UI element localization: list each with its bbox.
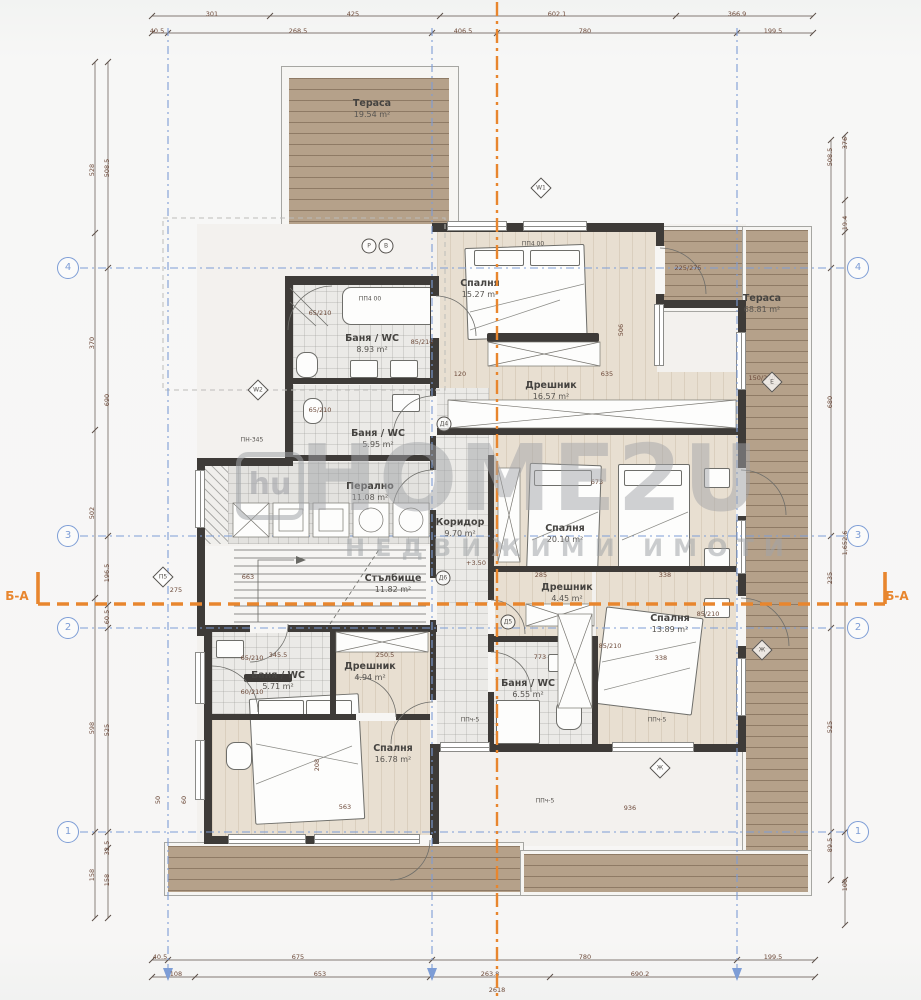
axis-marker-2: 2 — [847, 617, 869, 639]
dimension-label: 158 — [103, 874, 111, 886]
dimension-label: 635 — [601, 370, 613, 378]
floor-tile — [433, 388, 489, 746]
dimension-label: 85/210 — [599, 642, 622, 650]
room-label-bedroom-3: Спалня13.89 m² — [650, 613, 690, 634]
wall-segment — [430, 388, 436, 746]
dimension-label: 60/210 — [241, 688, 264, 696]
dimension-label: 508.5 — [103, 159, 111, 178]
room-label-laundry: Перално11.08 m² — [346, 481, 394, 502]
dimension-label: 32.5 — [103, 841, 111, 855]
wall-segment — [204, 714, 437, 720]
room-name: Спалня — [373, 743, 413, 755]
door-opening — [736, 596, 746, 646]
axis-marker-2: 2 — [57, 617, 79, 639]
room-label-terrace-right: Тераса68.81 m² — [743, 293, 781, 314]
room-name: Дрешник — [541, 582, 592, 594]
shower — [496, 700, 540, 744]
bathtub — [342, 287, 438, 325]
dimension-label: 208 — [313, 759, 321, 771]
door-opening — [488, 600, 495, 634]
dimension-label: 263.8 — [481, 970, 500, 978]
dimension-label: 40.5 — [153, 953, 167, 961]
dimension-label: 936 — [624, 804, 636, 812]
dimension-label: 85/210 — [697, 610, 720, 618]
room-area: 6.55 m² — [501, 690, 555, 700]
room-area: 13.89 m² — [650, 625, 690, 635]
room-area: 4.45 m² — [541, 594, 592, 604]
text-tag: ППч-5 — [461, 717, 480, 724]
nightstand — [704, 468, 730, 488]
window — [523, 221, 587, 231]
dimension-label: 602.1 — [548, 10, 567, 18]
dimension-label: 85/210 — [411, 338, 434, 346]
dimension-label: 65/210 — [309, 406, 332, 414]
room-name: Стълбище — [365, 573, 422, 585]
wall-segment — [285, 276, 293, 466]
dimension-label: 598 — [88, 722, 96, 734]
wall-segment — [437, 428, 739, 435]
room-label-bedroom-1: Спалня15.27 m² — [460, 278, 500, 299]
room-area: 16.78 m² — [373, 755, 413, 765]
window — [736, 332, 746, 390]
dimension-label: 60 — [180, 796, 188, 804]
room-area: 4.94 m² — [344, 673, 395, 683]
dimension-label: 40.5 — [150, 27, 164, 35]
dimension-label: 406.5 — [454, 27, 473, 35]
dimension-label: 158 — [88, 869, 96, 881]
window — [612, 742, 694, 752]
dimension-label: 338 — [659, 571, 671, 579]
window — [736, 520, 746, 574]
dimension-label: 196.5 — [103, 564, 111, 583]
room-area: 5.95 m² — [351, 440, 405, 450]
dimension-label: 366.9 — [728, 10, 747, 18]
toilet — [296, 352, 318, 378]
dimension-label: 268.5 — [289, 27, 308, 35]
room-name: Спалня — [460, 278, 500, 290]
room-name: Коридор — [436, 517, 485, 529]
window — [654, 304, 664, 366]
dimension-label: 528 — [88, 164, 96, 176]
room-name: Перално — [346, 481, 394, 493]
wall-segment — [592, 636, 598, 750]
room-label-staircase: Стълбище11.82 m² — [365, 573, 422, 594]
wall-segment — [430, 744, 439, 844]
text-tag: ПП4 00 — [359, 296, 381, 303]
dimension-label: 506 — [617, 324, 625, 336]
dimension-label: 370 — [88, 337, 96, 349]
wall-segment — [488, 566, 739, 572]
room-name: Баня / WC — [351, 428, 405, 440]
room-label-bedroom-4: Спалня16.78 m² — [373, 743, 413, 764]
dimension-label: 675 — [292, 953, 304, 961]
dimension-label: 502 — [88, 507, 96, 519]
pillow — [534, 470, 592, 486]
dimension-label: 235 — [826, 572, 834, 584]
text-tag: ПП4 00 — [522, 241, 544, 248]
wall-segment — [488, 636, 596, 642]
nightstand — [704, 548, 730, 568]
circle-tag: Д6 — [436, 571, 451, 586]
dimension-label: 345.5 — [269, 651, 288, 659]
dimension-label: 690 — [103, 394, 111, 406]
section-label-right: Б-А — [885, 589, 908, 603]
room-name: Баня / WC — [345, 333, 399, 345]
door-opening — [356, 713, 396, 721]
dimension-label: 108 — [170, 970, 182, 978]
door-opening — [430, 396, 437, 436]
room-label-bath-2: Баня / WC5.95 m² — [351, 428, 405, 449]
dimension-label: 301 — [206, 10, 218, 18]
room-label-bath-3: Баня / WC6.55 m² — [501, 678, 555, 699]
dimension-label: 338 — [655, 654, 667, 662]
dimension-label: 663 — [242, 573, 254, 581]
window — [447, 221, 507, 231]
wall-segment — [292, 378, 432, 384]
room-label-bedroom-2: Спалня20.10 m² — [545, 523, 585, 544]
diamond-tag: W1 — [530, 177, 551, 198]
dimension-label: 120 — [454, 370, 466, 378]
dimension-label: 680 — [826, 396, 834, 408]
text-tag: ППч-5 — [648, 717, 667, 724]
wall-segment — [292, 455, 433, 461]
window — [228, 834, 306, 844]
dimension-label: 2618 — [489, 986, 506, 994]
wall-segment — [656, 300, 746, 308]
dimension-label: 425 — [347, 10, 359, 18]
door-opening — [430, 700, 437, 744]
dimension-label: 780 — [579, 27, 591, 35]
dimension-label: 275 — [170, 586, 182, 594]
room-label-dressing-1: Дрешник16.57 m² — [525, 380, 576, 401]
axis-marker-3: 3 — [57, 525, 79, 547]
dimension-label: 563 — [339, 803, 351, 811]
room-label-terrace-top: Тераса19.54 m² — [353, 98, 391, 119]
dimension-label: 199.5 — [764, 27, 783, 35]
dimension-label: 225/275 — [674, 264, 701, 272]
dimension-label: 250.5 — [376, 651, 395, 659]
door-opening — [250, 624, 288, 633]
dimension-label: 89.5 — [826, 838, 834, 852]
diamond-tag: П5 — [152, 566, 173, 587]
window — [195, 740, 205, 800]
room-name: Баня / WC — [501, 678, 555, 690]
tv-console — [487, 333, 599, 342]
axis-marker-1: 1 — [847, 821, 869, 843]
dimension-label: 60.5 — [103, 610, 111, 624]
dimension-label: 65/210 — [241, 654, 264, 662]
room-name: Спалня — [545, 523, 585, 535]
sink — [392, 394, 420, 412]
circle-tag: Р — [362, 239, 377, 254]
circle-tag: Д4 — [437, 417, 452, 432]
room-area: 19.54 m² — [353, 110, 391, 120]
door-opening — [430, 578, 437, 620]
dimension-label: 673 — [591, 478, 603, 486]
dimension-label: 199.5 — [764, 953, 783, 961]
window — [736, 658, 746, 716]
floor-wood — [746, 230, 808, 888]
dimension-label: 525 — [826, 721, 834, 733]
room-name: Тераса — [353, 98, 391, 110]
axis-arrowheads — [163, 968, 742, 981]
text-tag: ПН-345 — [241, 437, 264, 444]
room-name: Дрешник — [344, 661, 395, 673]
door-opening — [736, 468, 746, 516]
dimension-label: 780 — [579, 953, 591, 961]
room-area: 68.81 m² — [743, 305, 781, 315]
sink — [390, 360, 418, 378]
armchair — [226, 742, 252, 770]
sink — [350, 360, 378, 378]
axis-marker-4: 4 — [57, 257, 79, 279]
text-tag: ППч-5 — [536, 798, 555, 805]
dimension-label: 50 — [154, 796, 162, 804]
room-name: Спалня — [650, 613, 690, 625]
room-area: 16.57 m² — [525, 392, 576, 402]
room-area: 11.82 m² — [365, 585, 422, 595]
dimension-label: +3.50 — [466, 559, 486, 567]
dimension-label: 285 — [535, 571, 547, 579]
room-area: 20.10 m² — [545, 535, 585, 545]
room-area: 8.93 m² — [345, 345, 399, 355]
room-area: 15.27 m² — [460, 290, 500, 300]
dimension-label: 19.4 — [841, 216, 849, 230]
room-label-dressing-2: Дрешник4.45 m² — [541, 582, 592, 603]
circle-tag: Д5 — [501, 615, 516, 630]
room-area: 11.08 m² — [346, 493, 394, 503]
wall-segment — [204, 625, 437, 632]
dimension-label: 773 — [534, 653, 546, 661]
room-label-corridor: Коридор9.70 m² — [436, 517, 485, 538]
window — [314, 834, 420, 844]
pillow — [624, 470, 682, 486]
floor-plan-sheet: hu HOME2U НЕДВИЖИМИ ИМОТИ Б-А Б-А Тераса… — [0, 0, 921, 1000]
dimension-label: 508.5 — [826, 148, 834, 167]
circle-tag: В — [379, 239, 394, 254]
wall-segment — [330, 628, 336, 718]
wall-segment — [285, 276, 437, 285]
room-label-bath-1: Баня / WC8.93 m² — [345, 333, 399, 354]
floor-tile2 — [228, 462, 432, 544]
window — [195, 652, 205, 704]
room-label-dressing-3: Дрешник4.94 m² — [344, 661, 395, 682]
door-opening — [430, 470, 437, 510]
room-area: 9.70 m² — [436, 529, 485, 539]
dimension-label: 100 — [841, 879, 849, 891]
room-name: Баня / WC — [251, 670, 305, 682]
dimension-label: 376 — [841, 137, 849, 149]
axis-marker-1: 1 — [57, 821, 79, 843]
axis-marker-4: 4 — [847, 257, 869, 279]
wall-segment — [197, 458, 292, 466]
wall-segment — [204, 628, 212, 844]
door-opening — [431, 296, 440, 338]
section-label-left: Б-А — [5, 589, 28, 603]
room-name: Дрешник — [525, 380, 576, 392]
floor-wood — [168, 846, 520, 892]
window — [195, 470, 205, 528]
floor-wood — [524, 854, 808, 892]
dimension-label: 690.2 — [631, 970, 650, 978]
toilet — [556, 700, 582, 730]
sink — [548, 654, 576, 672]
dimension-label: 653 — [314, 970, 326, 978]
axis-marker-3: 3 — [847, 525, 869, 547]
window — [440, 742, 490, 752]
door-opening — [655, 246, 665, 294]
dimension-label: 525 — [103, 724, 111, 736]
dimension-label: 65/210 — [309, 309, 332, 317]
pillow — [474, 250, 524, 266]
room-name: Тераса — [743, 293, 781, 305]
pillow — [530, 250, 580, 266]
door-opening — [488, 652, 495, 692]
